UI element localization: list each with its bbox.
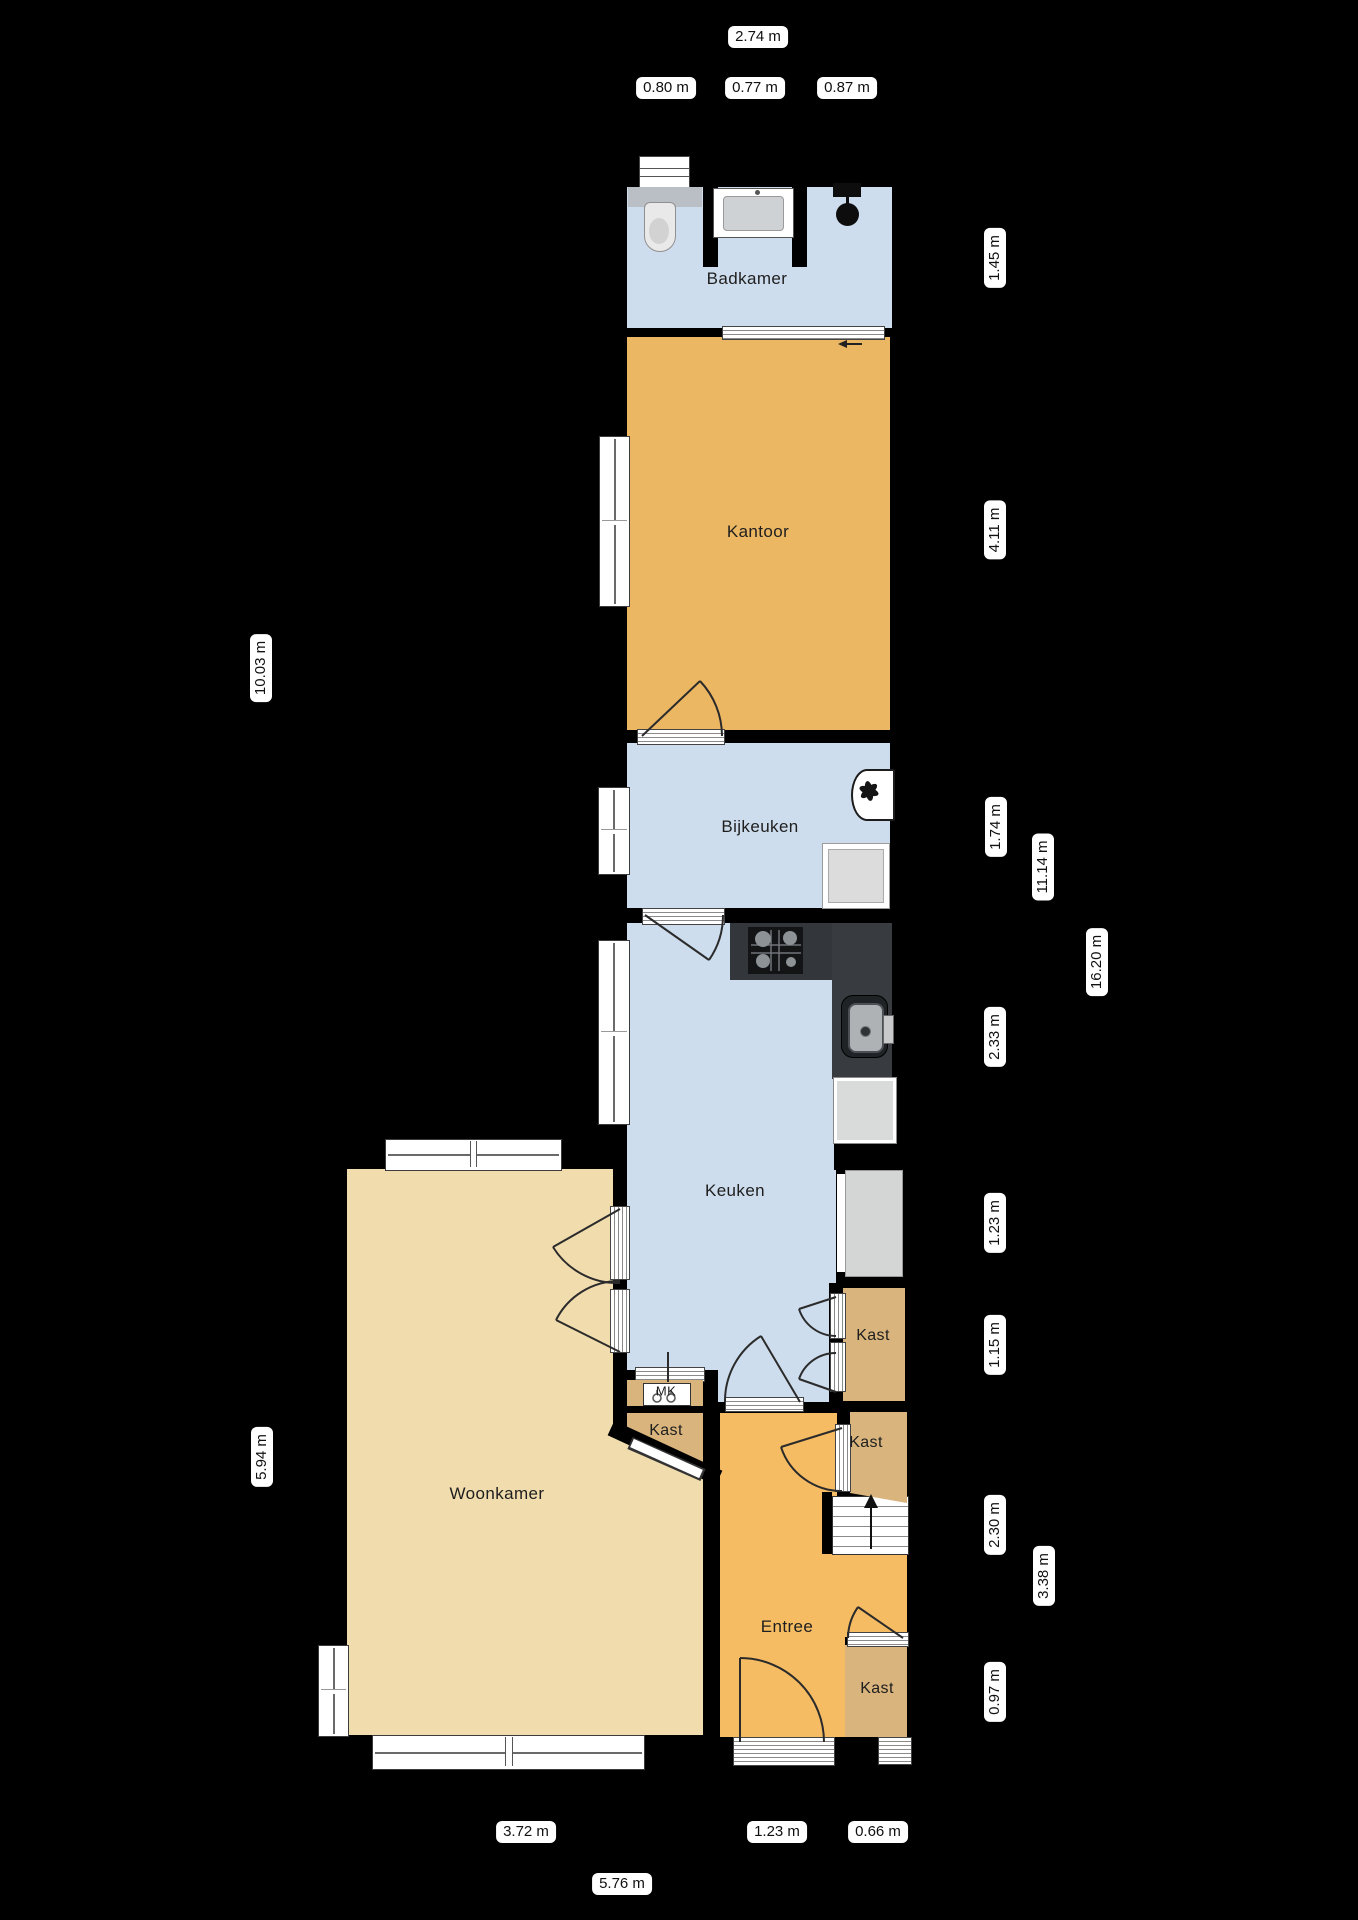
door-threshold-kast-entree: [847, 1632, 909, 1647]
label-kast-entree: Kast: [860, 1680, 894, 1698]
wall-badkamer-niche-stub-2: [792, 187, 807, 267]
front-door-threshold: [733, 1737, 835, 1766]
door-threshold-woonkamer-2: [610, 1289, 630, 1353]
dim-bottom-seg-3: 0.66 m: [848, 1821, 908, 1843]
label-meterkast: MK: [656, 1384, 676, 1399]
dishwasher-icon: [834, 1078, 896, 1143]
dim-left-seg-2: 5.94 m: [251, 1427, 273, 1487]
room-kast-trap: [850, 1412, 907, 1503]
washbasin-tap: [755, 190, 760, 195]
window-woonkamer-top-mullion: [470, 1141, 477, 1167]
washbasin-basin: [723, 196, 784, 231]
dim-top-seg-1: 0.80 m: [636, 77, 696, 99]
room-entree-a: [720, 1413, 837, 1553]
label-kast-hal: Kast: [649, 1422, 683, 1440]
fridge-icon: [845, 1170, 903, 1277]
door-threshold-woonkamer-1: [610, 1206, 630, 1280]
window-woonkamer-bottom-mullion: [505, 1737, 513, 1766]
door-threshold-kantoor: [637, 729, 725, 745]
dim-right-total-3: 16.20 m: [1086, 928, 1108, 996]
dim-right-seg-8: 0.97 m: [984, 1662, 1006, 1722]
boiler-icon: [851, 769, 895, 821]
fridge-hatch: [837, 1174, 845, 1272]
dim-right-seg-7: 2.30 m: [984, 1495, 1006, 1555]
label-kast-keuken: Kast: [856, 1327, 890, 1345]
dim-right-seg-5: 1.23 m: [984, 1193, 1006, 1253]
dim-right-seg-2: 4.11 m: [984, 501, 1006, 560]
dim-top-seg-3: 0.87 m: [817, 77, 877, 99]
dim-top-total: 2.74 m: [728, 26, 788, 48]
kitchen-sink-drain: [860, 1026, 871, 1037]
wall-mk-bottom: [627, 1405, 703, 1413]
window-bijkeuken: [598, 787, 630, 875]
kitchen-tap-icon: [883, 1015, 894, 1044]
dim-left-seg-1: 10.03 m: [250, 634, 272, 702]
label-badkamer: Badkamer: [707, 269, 788, 289]
label-woonkamer: Woonkamer: [450, 1484, 545, 1504]
door-threshold-kast-keuken-2: [830, 1342, 846, 1392]
dim-top-seg-2: 0.77 m: [725, 77, 785, 99]
dim-bottom-seg-1: 3.72 m: [496, 1821, 556, 1843]
window-keuken: [598, 940, 630, 1125]
room-entree-c: [720, 1637, 845, 1737]
toilet-bowl-inner: [649, 218, 669, 244]
label-entree: Entree: [761, 1617, 814, 1637]
label-bijkeuken: Bijkeuken: [721, 817, 798, 837]
dim-bottom-total: 5.76 m: [592, 1873, 652, 1895]
room-entree-b: [720, 1553, 907, 1637]
washing-machine-inner: [828, 849, 884, 903]
dim-right-total-1: 11.14 m: [1032, 833, 1054, 900]
dim-bottom-seg-2: 1.23 m: [747, 1821, 807, 1843]
shower-head-icon: [836, 203, 859, 226]
window-woonkamer-left: [318, 1645, 349, 1737]
sliding-door-badkamer: [722, 326, 885, 340]
dim-right-seg-3: 1.74 m: [985, 797, 1007, 857]
label-kast-trap: Kast: [849, 1434, 883, 1452]
floorplan: Badkamer Kantoor Bijkeuken Keuken Woonka…: [0, 0, 1358, 1920]
window-kantoor: [599, 436, 630, 607]
dim-right-seg-4: 2.33 m: [984, 1007, 1006, 1067]
door-threshold-kast-keuken-1: [830, 1293, 846, 1339]
window-kast-entree: [878, 1737, 912, 1765]
dim-right-seg-6: 1.15 m: [984, 1315, 1006, 1375]
hob-icon: [748, 927, 803, 974]
stairs: [832, 1496, 909, 1555]
toilet-cistern-icon: [639, 156, 690, 190]
wall-stairs-left: [822, 1492, 832, 1554]
label-keuken: Keuken: [705, 1181, 765, 1201]
dim-right-total-2: 3.38 m: [1033, 1546, 1055, 1606]
dim-right-seg-1: 1.45 m: [984, 228, 1006, 288]
door-threshold-bijkeuken: [642, 908, 725, 925]
label-kantoor: Kantoor: [727, 522, 789, 542]
door-threshold-keuken-entree: [725, 1397, 804, 1412]
